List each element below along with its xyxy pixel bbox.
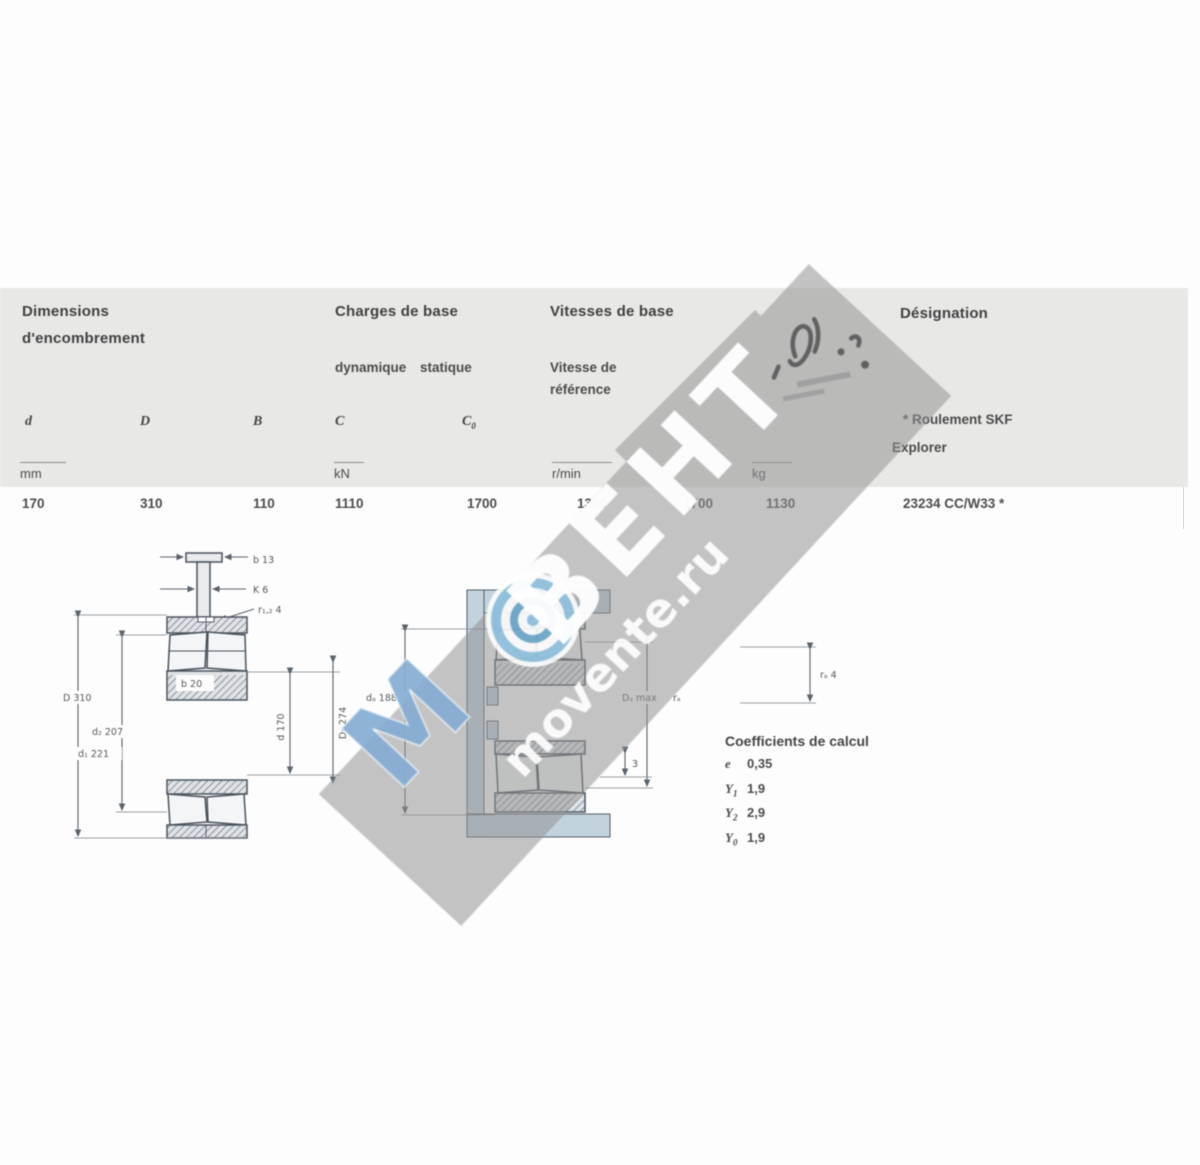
subheader-vitesse-2: référence [550, 382, 611, 397]
dim-label-d1: d₁ 221 [78, 749, 109, 760]
designation-note-1: * Roulement SKF [903, 412, 1013, 427]
col-group-vitesses: Vitesses de base [550, 303, 674, 320]
dim-label-d: d 170 [276, 713, 287, 740]
dim-label-inner: b 20 [181, 679, 202, 690]
dim-label-d2: d₂ 207 [92, 727, 123, 738]
symbol-C0: C0 [462, 414, 476, 431]
cell-speed-lim: 1700 [683, 496, 713, 511]
table-right-rule [1183, 487, 1184, 529]
subheader-vitesse-1: Vitesse de [550, 360, 617, 375]
cell-designation: 23234 CC/W33 * [903, 496, 1004, 511]
datasheet-page: Dimensions d'encombrement Charges de bas… [0, 0, 1200, 1165]
dim-label-K: K 6 [253, 585, 268, 596]
cell-mass: 1130 [766, 496, 795, 511]
designation-note-2: Explorer [892, 440, 947, 455]
dim-label-ra: rₐ 4 [820, 670, 837, 681]
dim-label-ra-small: rₐ [673, 693, 681, 704]
col-group-charges: Charges de base [335, 303, 458, 320]
unit-rmin: r/min [552, 462, 612, 483]
unit-kN: kN [334, 462, 364, 483]
col-group-dimensions-2: d'encombrement [22, 330, 145, 347]
cell-C0: 1700 [467, 496, 497, 511]
col-group-dimensions: Dimensions [22, 303, 109, 320]
subheader-statique: statique [420, 360, 472, 375]
unit-mm: mm [20, 462, 66, 483]
symbol-D: D [140, 414, 150, 430]
bearing-drawings: b 13 K 6 r₁,₂ 4 b 20 [40, 545, 900, 870]
dim-label-D1: D₁ 274 [338, 707, 349, 739]
cell-D: 310 [140, 496, 163, 511]
symbol-B: B [253, 414, 262, 430]
cell-d: 170 [22, 496, 45, 511]
dim-label-step: 3 [632, 759, 638, 770]
dim-label-da: dₐ 188 [366, 693, 397, 704]
dim-label-b: b 13 [253, 555, 274, 566]
spec-table-header: Dimensions d'encombrement Charges de bas… [0, 288, 1188, 487]
unit-kg: kg [752, 462, 792, 483]
symbol-C: C [335, 414, 344, 430]
dim-label-Da: Dₐ max [622, 693, 657, 704]
col-group-designation: Désignation [900, 305, 988, 322]
cell-speed-ref: 1300 [577, 496, 607, 511]
figure-bearing-section: b 13 K 6 r₁,₂ 4 b 20 [60, 553, 349, 838]
cell-B: 110 [253, 496, 275, 511]
dim-label-D: D 310 [63, 693, 91, 704]
figure-mounting-section: dₐ 188 Dₐ max rₐ rₐ 4 3 [362, 590, 837, 837]
cell-C: 1110 [335, 496, 364, 511]
dim-label-r12: r₁,₂ 4 [258, 605, 282, 616]
symbol-d: d [25, 414, 32, 430]
subheader-dynamique: dynamique [335, 360, 406, 375]
